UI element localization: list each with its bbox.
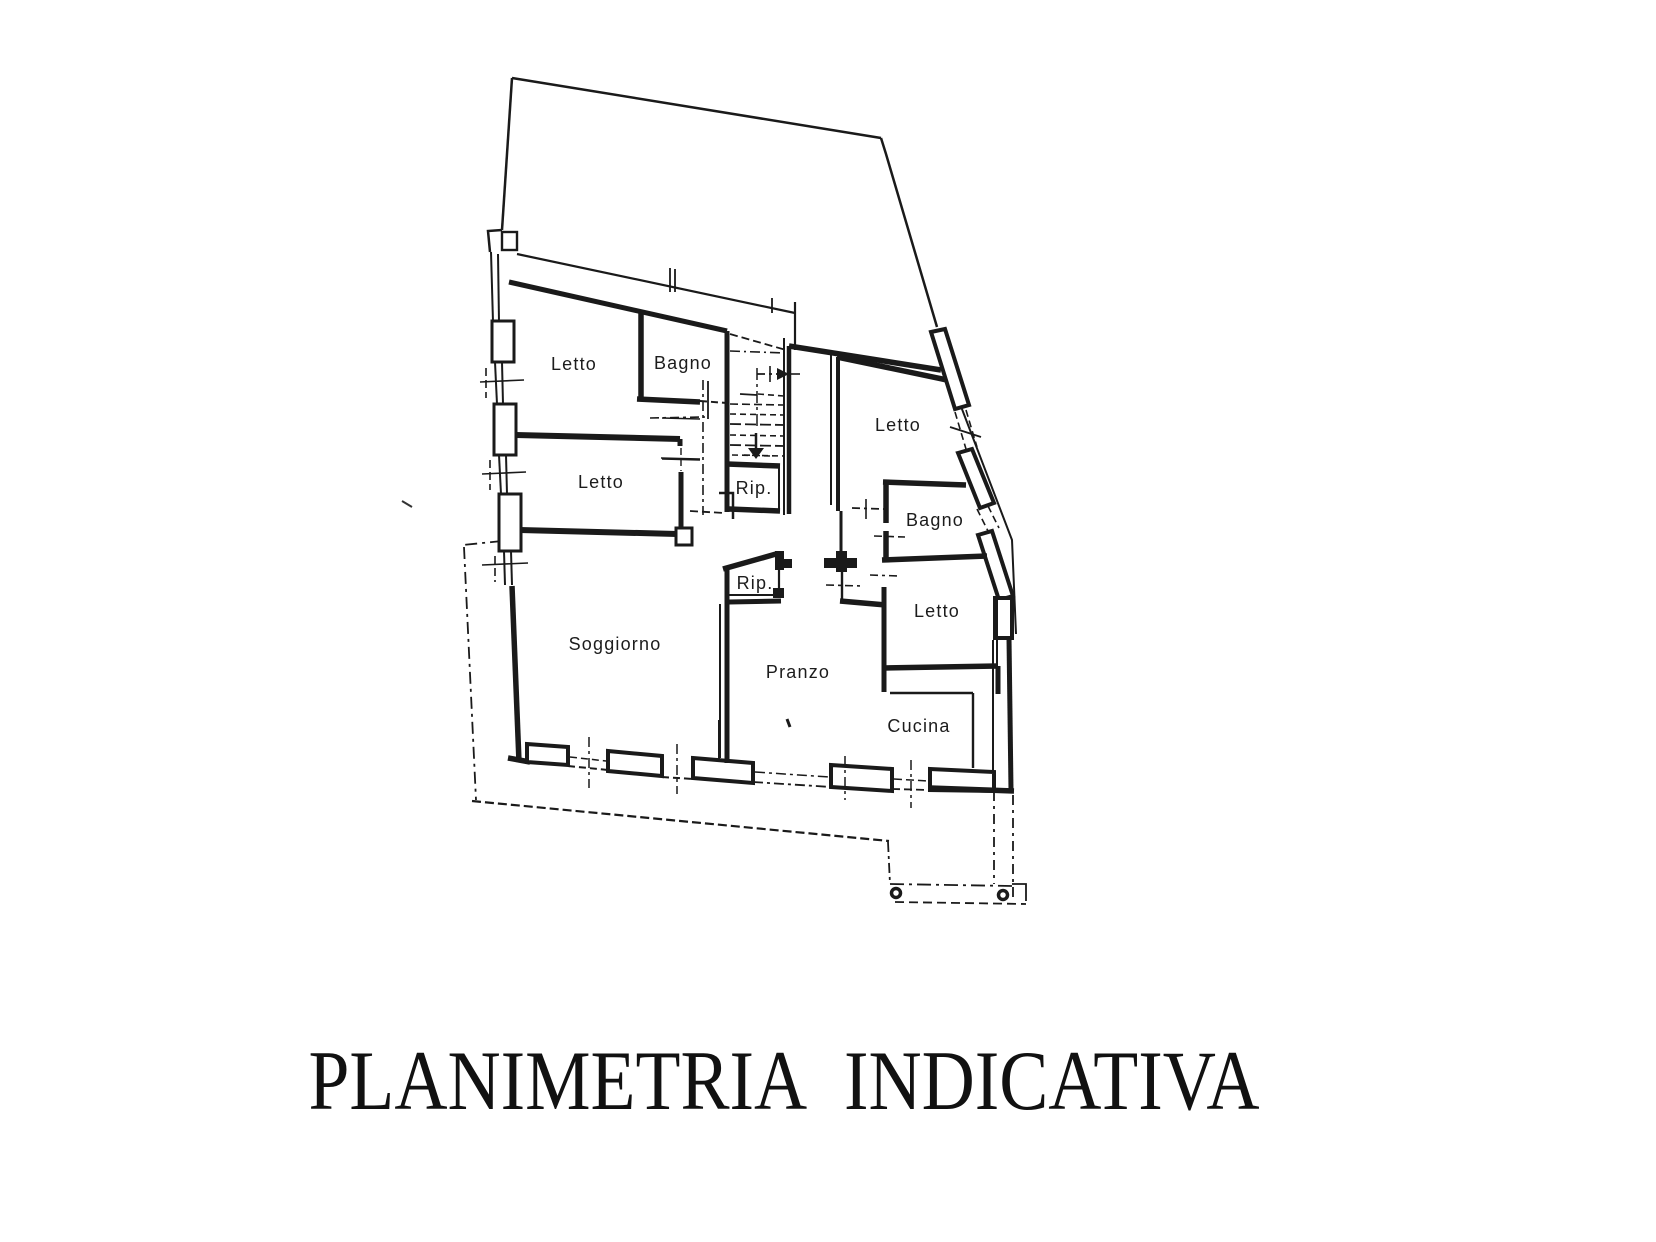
- svg-text:Bagno: Bagno: [906, 510, 964, 530]
- svg-text:Pranzo: Pranzo: [766, 662, 830, 682]
- svg-text:Letto: Letto: [875, 415, 921, 435]
- svg-text:Letto: Letto: [578, 472, 624, 492]
- svg-text:Soggiorno: Soggiorno: [569, 634, 662, 654]
- svg-text:Letto: Letto: [914, 601, 960, 621]
- svg-text:Letto: Letto: [551, 354, 597, 374]
- svg-text:Rip.: Rip.: [737, 573, 774, 593]
- svg-text:Cucina: Cucina: [887, 716, 950, 736]
- svg-text:Bagno: Bagno: [654, 353, 712, 373]
- svg-text:PLANIMETRIA INDICATIVA: PLANIMETRIA INDICATIVA: [309, 1034, 1260, 1128]
- svg-text:Rip.: Rip.: [736, 478, 773, 498]
